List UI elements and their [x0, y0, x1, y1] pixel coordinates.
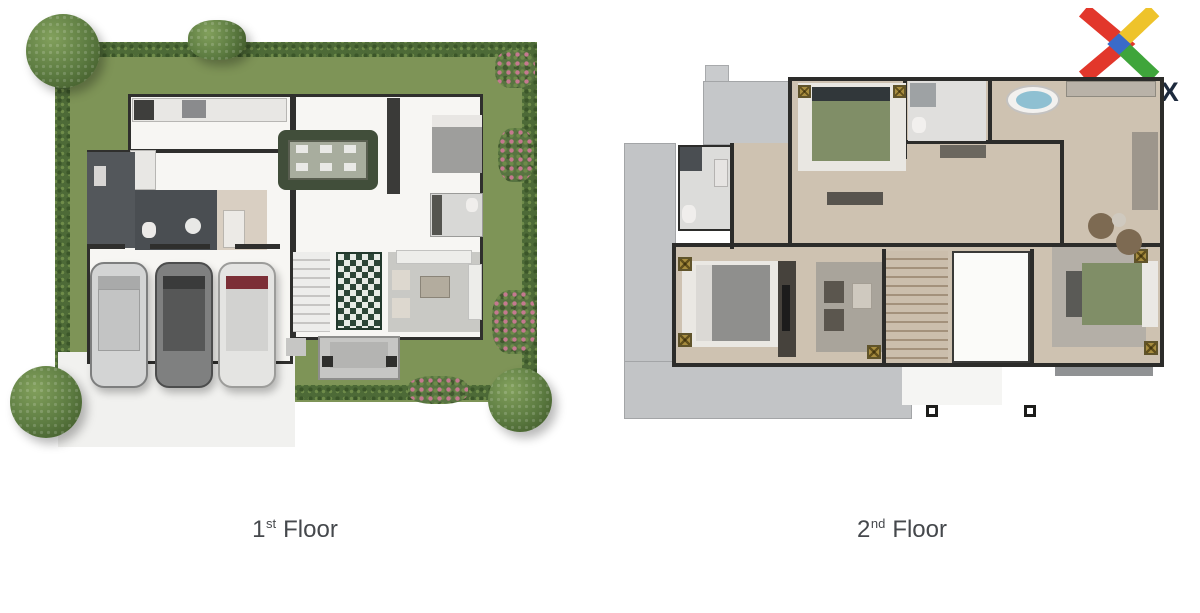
bathroom-right-toilet	[466, 198, 478, 212]
bed-headboard-top	[812, 87, 890, 101]
second-floor-label: 2ndFloor	[757, 516, 1047, 544]
tv-partition	[387, 98, 400, 194]
floor-number: 1	[252, 516, 266, 543]
bathroom-toilet	[142, 222, 156, 238]
bed-pillows	[432, 115, 482, 127]
porch-planter-1	[322, 356, 333, 367]
nightstand-4	[678, 333, 692, 347]
column-marker-2	[1024, 405, 1036, 417]
tree-bottom-right	[488, 368, 552, 432]
tree-bottom-left	[10, 366, 82, 438]
terrace-bottom	[624, 361, 912, 419]
bed-right-bench	[1066, 271, 1082, 317]
bush-top-middle	[188, 20, 246, 60]
bed-duvet	[432, 127, 482, 173]
car-silver-roof	[98, 289, 140, 351]
car-silver-windshield	[98, 276, 140, 289]
flowers-top-right	[495, 50, 535, 88]
stair-void	[952, 251, 1030, 363]
living-coffee-table	[420, 276, 450, 298]
nightstand-7	[1144, 341, 1158, 355]
column-marker-1	[926, 405, 938, 417]
second-floor-plan[interactable]	[620, 55, 1188, 455]
kitchen-fridge	[134, 100, 154, 120]
logo-x-yellow-arm	[1123, 11, 1155, 41]
porch-side-pad	[286, 338, 306, 356]
roof-top-left	[703, 81, 795, 145]
car-white-windshield	[226, 276, 268, 289]
first-floor-label: 1stFloor	[150, 516, 440, 544]
bathtub-water	[1016, 91, 1052, 109]
dining-plate	[320, 163, 332, 171]
floor-number: 2	[857, 516, 871, 543]
living-sofa-right	[468, 264, 482, 320]
bench	[827, 192, 883, 205]
closet-counter-right	[1132, 132, 1158, 210]
shower-2	[910, 83, 936, 107]
nightstand-5	[867, 345, 881, 359]
nightstand-2	[893, 85, 906, 98]
round-table	[1112, 213, 1126, 227]
terrace-left	[624, 143, 676, 365]
x-mark-logo-icon	[1078, 8, 1160, 80]
side-table	[852, 283, 872, 309]
dining-plate	[344, 163, 356, 171]
bathroom-dark	[135, 190, 217, 250]
bed-green-right	[1082, 263, 1142, 325]
living-sofa-top	[396, 250, 472, 264]
round-chair-1	[1088, 213, 1114, 239]
dining-plate	[320, 145, 332, 153]
wall-void-right	[1030, 249, 1034, 363]
floor-hall	[732, 143, 792, 249]
shower	[680, 147, 702, 171]
sink	[714, 159, 728, 187]
round-chair-2	[1116, 229, 1142, 255]
entry-porch-step	[330, 342, 388, 368]
floor-word: Floor	[283, 516, 338, 543]
nightstand-3	[678, 257, 692, 271]
toilet-2	[912, 117, 926, 133]
staircase	[886, 251, 948, 363]
garage-wall-3	[235, 244, 280, 249]
tree-top-left	[26, 14, 100, 88]
car-white-roof	[226, 289, 268, 351]
logo-x-green-arm	[1123, 48, 1155, 78]
flowers-right-lower	[492, 290, 536, 354]
flowers-right-middle	[498, 128, 534, 182]
utility-sink	[94, 166, 106, 186]
wall-left-lower	[672, 245, 676, 367]
car-gray-windshield	[163, 276, 205, 289]
armchair-2	[824, 309, 844, 331]
bathroom-right-counter	[432, 195, 442, 235]
dresser	[940, 145, 986, 158]
terrace-white-patch	[902, 363, 1002, 405]
toilet	[682, 205, 696, 223]
car-gray-roof	[163, 289, 205, 351]
living-armchair-2	[392, 298, 410, 318]
property-floorplan-image: { "labels": { "floor1": { "num": "1", "s…	[0, 0, 1200, 613]
living-armchair-1	[392, 270, 410, 290]
bathroom-washer	[185, 218, 201, 234]
hedge-left	[55, 42, 70, 372]
garage-wall-1	[87, 244, 125, 249]
porch-planter-2	[386, 356, 397, 367]
floor-ordinal: nd	[871, 516, 885, 531]
dining-plate	[344, 145, 356, 153]
wardrobe-top-right	[1066, 81, 1156, 97]
floor-word: Floor	[892, 516, 947, 543]
hedge-top	[55, 42, 537, 57]
wall-bath-divider	[988, 79, 992, 141]
dining-plate	[296, 145, 308, 153]
rug-sitting	[816, 262, 882, 352]
deck-checkered	[336, 252, 382, 330]
wall-closet-left	[1060, 140, 1064, 245]
bed-gray-pillows	[696, 265, 712, 341]
armchair-1	[824, 281, 844, 303]
garage-wall-2	[150, 244, 210, 249]
first-floor-plan[interactable]	[30, 14, 560, 466]
maid-bed	[223, 210, 245, 248]
floor-ordinal: st	[266, 516, 276, 531]
dining-plate	[296, 163, 308, 171]
wall-right	[1160, 77, 1164, 367]
wall-bedroom-top-left	[788, 79, 792, 245]
flowers-bottom-middle	[408, 376, 468, 404]
kitchen-stove	[182, 100, 206, 118]
staircase	[290, 252, 330, 332]
bed-right-headboard	[1142, 261, 1158, 327]
nightstand-1	[798, 85, 811, 98]
kitchen-counter	[132, 98, 287, 122]
tv-screen	[782, 285, 790, 331]
wall-bottom	[672, 363, 1164, 367]
